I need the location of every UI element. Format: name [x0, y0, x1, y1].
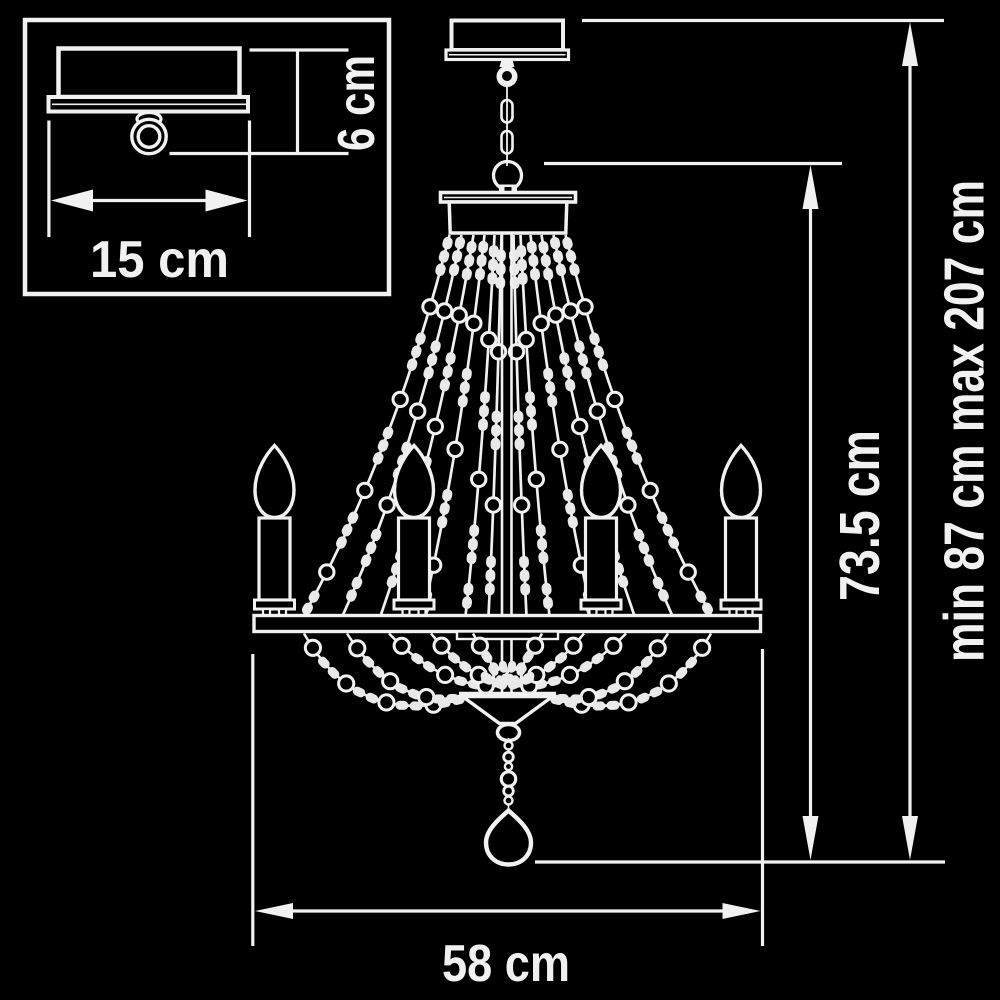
svg-text:6 cm: 6 cm [328, 55, 386, 151]
svg-text:58 cm: 58 cm [442, 935, 570, 993]
svg-text:min 87 cm max 207 cm: min 87 cm max 207 cm [933, 180, 997, 662]
svg-text:73.5 cm: 73.5 cm [828, 430, 892, 601]
svg-text:15 cm: 15 cm [90, 231, 229, 289]
